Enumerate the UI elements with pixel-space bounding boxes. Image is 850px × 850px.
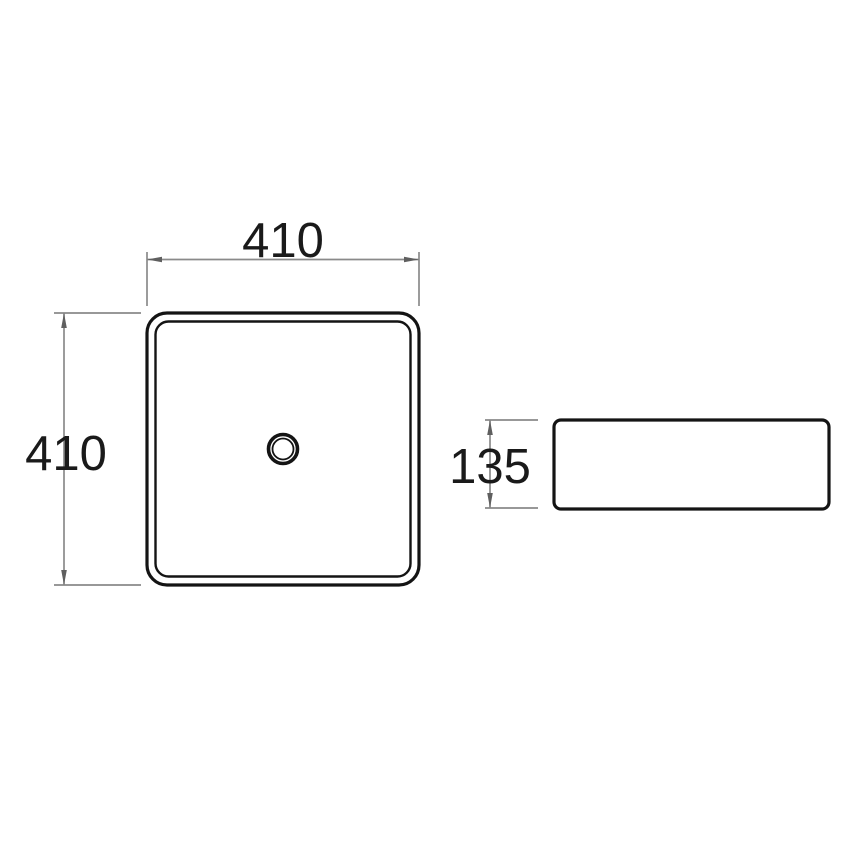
arrow-right-icon (404, 257, 419, 263)
plan-width-dimension: 410 (147, 214, 419, 306)
side-height-label: 135 (449, 440, 531, 494)
plan-height-dimension: 410 (25, 313, 141, 585)
side-view-outline (554, 420, 829, 509)
plan-width-label: 410 (242, 214, 324, 268)
technical-drawing-page: 410 410 135 (0, 0, 850, 850)
plan-view (147, 313, 419, 585)
arrow-down-icon (487, 493, 493, 508)
drain-hole-inner (273, 439, 294, 460)
basin-inner-rim (156, 322, 411, 577)
basin-outer-outline (147, 313, 419, 585)
basin-dimension-drawing: 410 410 135 (0, 0, 850, 850)
plan-height-label: 410 (25, 427, 107, 481)
arrow-down-icon (61, 570, 67, 585)
side-view (554, 420, 829, 509)
arrow-up-icon (61, 313, 67, 328)
side-height-dimension: 135 (449, 420, 538, 508)
arrow-left-icon (147, 257, 162, 263)
arrow-up-icon (487, 420, 493, 435)
